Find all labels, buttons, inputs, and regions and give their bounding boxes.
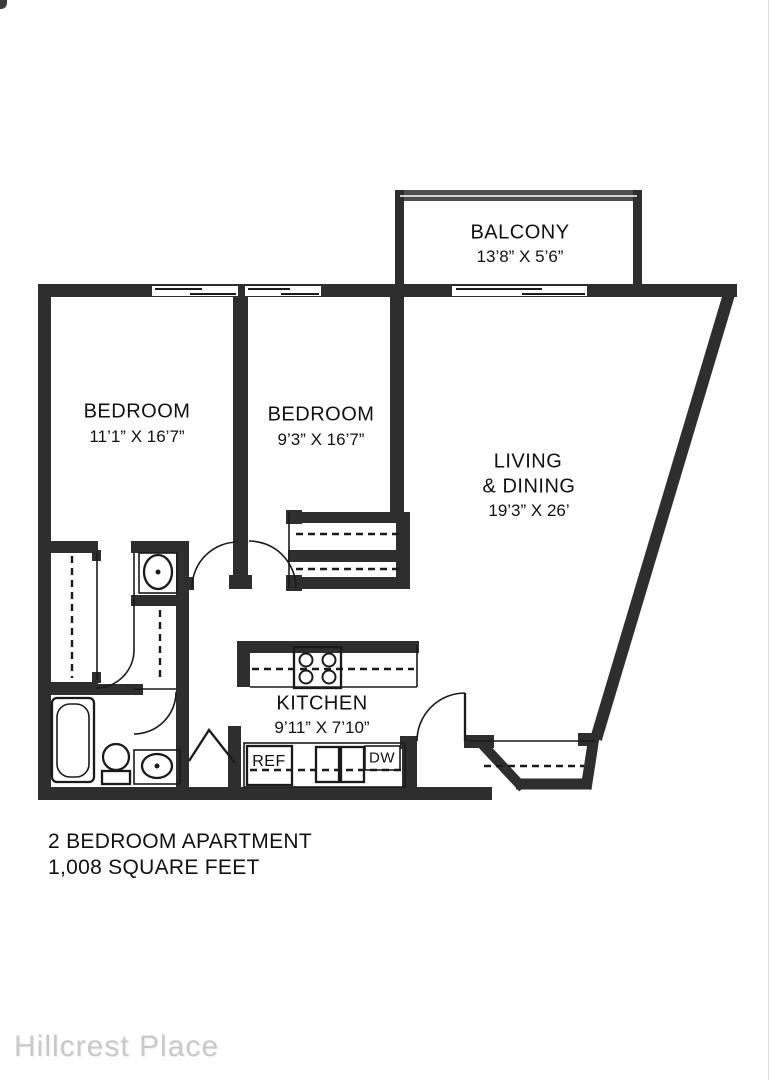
kitchen-sink-basin-right	[341, 747, 364, 782]
stove-burner	[300, 671, 313, 684]
floorplan-drawing	[0, 0, 771, 1080]
toilet-tank	[102, 771, 130, 784]
linen-top-wall	[143, 595, 188, 606]
bedroom2-living-wall	[390, 297, 404, 517]
linen-top-cap	[131, 595, 143, 606]
balcony-left-post	[395, 190, 404, 291]
bedroom1-dims: 11’1” X 16’7”	[89, 427, 184, 447]
refrigerator-label: REF	[252, 753, 286, 771]
fixtures	[52, 555, 400, 785]
bathroom-door-arc	[134, 692, 176, 734]
bathroom-top-wall	[51, 684, 134, 695]
bath-sink-drain	[155, 764, 160, 769]
closet-block-top	[288, 512, 410, 523]
bathtub-inner	[57, 704, 89, 777]
caption-line1: 2 BEDROOM APARTMENT	[48, 829, 312, 855]
linen-door-arc	[96, 650, 134, 688]
bedroom2-label: BEDROOM	[268, 404, 375, 427]
dishwasher-label: DW	[369, 750, 395, 767]
dressing-sink-drain	[156, 570, 161, 575]
angled-walls	[481, 291, 730, 789]
balcony-label: BALCONY	[470, 222, 569, 245]
kitchen-dims: 9’11” X 7’10”	[274, 718, 369, 738]
toilet-bowl	[103, 744, 129, 770]
balcony-right-post	[633, 190, 642, 291]
balcony-dims: 13’8” X 5’6”	[477, 247, 564, 267]
living-label-line2: & DINING	[483, 476, 576, 499]
closet-block-right	[396, 512, 410, 589]
living-dims: 19’3” X 26’	[488, 501, 569, 521]
kitchen-sink-basin-left	[316, 747, 339, 782]
floorplan-page: BALCONY 13’8” X 5’6” BEDROOM 11’1” X 16’…	[0, 0, 771, 1080]
peninsula-left-cap	[237, 641, 250, 687]
stove-burner	[323, 671, 336, 684]
bedroom1-label: BEDROOM	[84, 401, 191, 424]
living-angled-wall	[596, 291, 730, 739]
stove-burner	[323, 654, 336, 667]
bottom-wall	[38, 787, 492, 800]
bedroom1-bottom-wall-a	[51, 541, 98, 553]
stove-burner	[300, 654, 313, 667]
property-watermark: Hillcrest Place	[14, 1030, 219, 1064]
bedroom-divider-wall	[233, 297, 248, 589]
closet-block-mid	[288, 550, 410, 562]
closet-block-bottom	[288, 577, 410, 589]
entry-door-arc	[417, 693, 465, 741]
windows	[152, 196, 637, 296]
plan-caption: 2 BEDROOM APARTMENT 1,008 SQUARE FEET	[48, 829, 312, 881]
caption-line2: 1,008 SQUARE FEET	[48, 855, 312, 881]
bedroom-divider-foot	[229, 575, 252, 589]
living-label-line1: LIVING	[494, 451, 563, 474]
left-wall	[38, 284, 51, 800]
walls	[38, 190, 737, 800]
scan-edge-line	[768, 0, 769, 1080]
top-wall	[38, 284, 737, 297]
kitchen-label: KITCHEN	[276, 693, 367, 716]
bedroom2-dims: 9’3” X 16’7”	[278, 430, 365, 450]
